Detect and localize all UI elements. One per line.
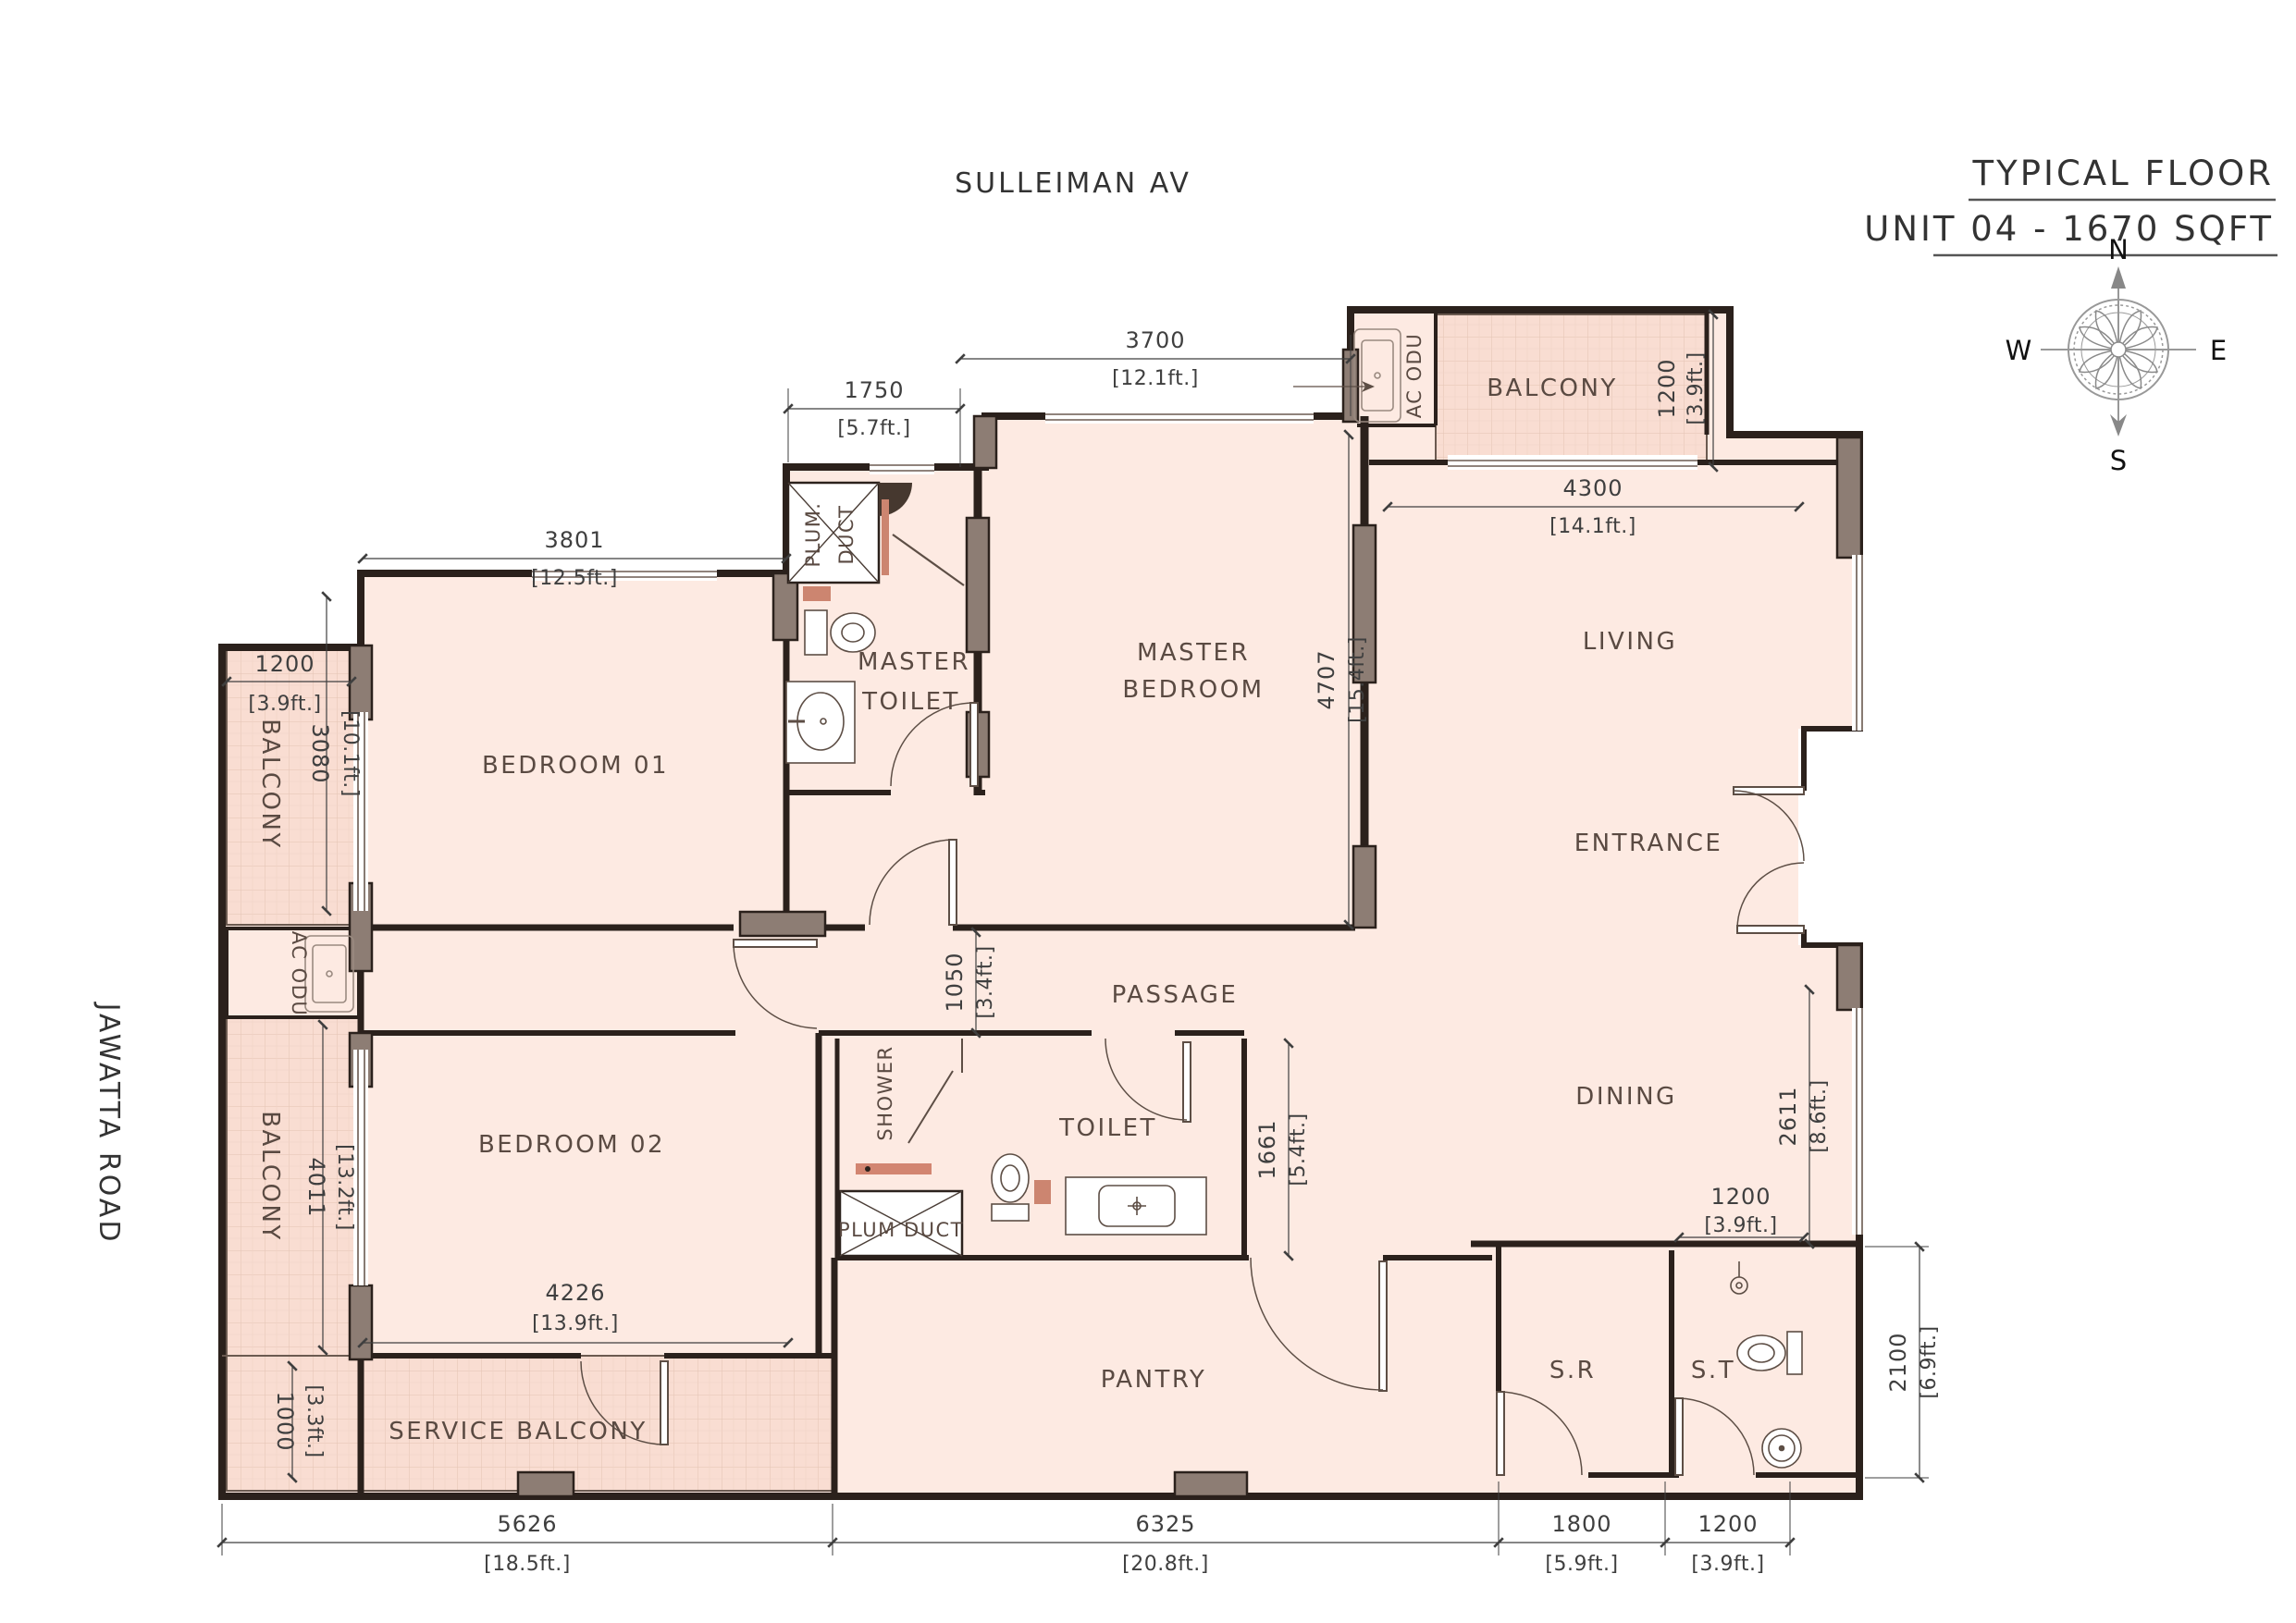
dim-4011-ft: [13.2ft.]: [333, 1144, 356, 1231]
label-bedroom1: BEDROOM 01: [482, 752, 669, 780]
dim-1200d-mm: 1200: [1710, 1184, 1771, 1210]
dim-4707-mm: 4707: [1314, 649, 1339, 709]
dim-2611-ft: [8.6ft.]: [1808, 1079, 1831, 1152]
label-ac-odu-top: AC ODU: [1403, 333, 1426, 418]
label-bedroom2: BEDROOM 02: [478, 1131, 665, 1159]
window-living-right: [1852, 555, 1867, 731]
dim-1200st-ft: [3.9ft.]: [1691, 1553, 1764, 1576]
dim-5626-mm: 5626: [497, 1511, 557, 1537]
label-balcony-top: BALCONY: [1487, 375, 1618, 402]
dim-1661-mm: 1661: [1254, 1119, 1280, 1179]
window-dining-right: [1852, 1008, 1867, 1235]
dim-1050-ft: [3.4ft.]: [974, 945, 997, 1018]
label-living: LIVING: [1583, 628, 1677, 656]
label-plum-master-2: DUCT: [835, 504, 858, 564]
dim-4707-ft: [15.4ft.]: [1346, 636, 1369, 723]
dim-1800-mm: 1800: [1551, 1511, 1611, 1537]
label-st: S.T: [1691, 1357, 1735, 1384]
dim-4300-ft: [14.1ft.]: [1549, 515, 1636, 538]
dim-1200bt-ft: [3.9ft.]: [1685, 351, 1708, 424]
dim-3801-mm: 3801: [544, 527, 604, 553]
label-sr: S.R: [1549, 1357, 1596, 1384]
window-master-bedroom-top: [1045, 409, 1314, 424]
label-plum-master-1: PLUM.: [802, 502, 824, 568]
dim-3080-mm: 3080: [307, 723, 333, 783]
compass-north-arrow: [2111, 266, 2126, 289]
label-shower: SHOWER: [874, 1045, 896, 1140]
street-label-top: SULLEIMAN AV: [955, 167, 1191, 200]
dim-1200d-ft: [3.9ft.]: [1704, 1214, 1777, 1237]
compass-w: W: [2006, 335, 2032, 366]
dim-1200bl-ft: [3.9ft.]: [248, 693, 321, 716]
label-toilet: TOILET: [1058, 1114, 1157, 1142]
street-label-left: JAWATTA ROAD: [93, 1002, 125, 1245]
label-plum-toilet: PLUM DUCT: [838, 1219, 964, 1241]
title-block: TYPICAL FLOOR UNIT 04 - 1670 SQFT: [1864, 154, 2277, 255]
floor-plan-page: 3801 [12.5ft.] 1750 [5.7ft.] 3700 [12.1f…: [0, 0, 2296, 1623]
compass-n: N: [2108, 234, 2129, 265]
dim-4300-mm: 4300: [1562, 475, 1623, 501]
basin-master-toilet: [786, 682, 855, 763]
dim-1000-mm: 1000: [272, 1391, 298, 1451]
dim-1200bt-mm: 1200: [1654, 358, 1680, 418]
dim-1200bl-mm: 1200: [254, 651, 315, 677]
dim-2100-mm: 2100: [1885, 1332, 1911, 1392]
window-master-toilet-top: [870, 460, 934, 474]
dim-1800-ft: [5.9ft.]: [1545, 1553, 1618, 1576]
title-line1: TYPICAL FLOOR: [1972, 154, 2274, 193]
dim-1000-ft: [3.3ft.]: [302, 1384, 326, 1457]
label-service-balcony: SERVICE BALCONY: [389, 1418, 647, 1445]
dim-4226-mm: 4226: [545, 1280, 605, 1306]
dim-1200st-mm: 1200: [1697, 1511, 1758, 1537]
dim-3700-mm: 3700: [1125, 327, 1185, 353]
label-passage: PASSAGE: [1112, 981, 1239, 1009]
vanity-common-toilet: [1066, 1177, 1206, 1235]
dim-1750-ft: [5.7ft.]: [837, 417, 910, 440]
dim-4011-mm: 4011: [303, 1157, 329, 1217]
label-balcony-left-upper: BALCONY: [256, 719, 284, 850]
tap-accent-master: [803, 586, 831, 601]
compass-rose: N S W E: [2006, 234, 2228, 476]
label-ac-odu-left: AC ODU: [288, 931, 310, 1016]
sink-st: [1762, 1429, 1801, 1468]
title-line2: UNIT 04 - 1670 SQFT: [1864, 209, 2274, 249]
dim-3801-ft: [12.5ft.]: [531, 567, 618, 590]
wc-st: [1737, 1332, 1802, 1374]
dim-3080-ft: [10.1ft.]: [339, 710, 362, 797]
dim-2611-mm: 2611: [1775, 1086, 1801, 1146]
shower-glass-strip: [882, 499, 889, 575]
label-master-bedroom-1: MASTER: [1137, 639, 1250, 667]
shower-drain-toilet: [865, 1166, 870, 1172]
window-living-balcony: [1448, 455, 1697, 470]
dim-1750-mm: 1750: [844, 377, 904, 403]
wc-common-toilet: [992, 1154, 1029, 1221]
label-master-toilet-2: TOILET: [861, 688, 960, 716]
label-balcony-left-lower: BALCONY: [256, 1111, 284, 1242]
dim-1661-ft: [5.4ft.]: [1287, 1113, 1310, 1186]
label-master-bedroom-2: BEDROOM: [1122, 676, 1264, 704]
dim-1050-mm: 1050: [942, 952, 968, 1012]
compass-e: E: [2210, 335, 2227, 366]
label-entrance: ENTRANCE: [1574, 830, 1723, 857]
floor-plan-drawing: 3801 [12.5ft.] 1750 [5.7ft.] 3700 [12.1f…: [0, 0, 2296, 1623]
dim-6325-ft: [20.8ft.]: [1122, 1553, 1209, 1576]
label-pantry: PANTRY: [1101, 1366, 1206, 1394]
dim-3700-ft: [12.1ft.]: [1112, 367, 1199, 390]
dim-5626-ft: [18.5ft.]: [484, 1553, 571, 1576]
dim-4226-ft: [13.9ft.]: [532, 1312, 619, 1335]
label-dining: DINING: [1575, 1083, 1676, 1111]
label-master-toilet-1: MASTER: [858, 648, 970, 676]
dim-6325-mm: 6325: [1135, 1511, 1195, 1537]
dim-2100-ft: [6.9ft.]: [1918, 1325, 1941, 1398]
accent-box-toilet: [1034, 1180, 1051, 1204]
compass-s: S: [2110, 445, 2127, 476]
